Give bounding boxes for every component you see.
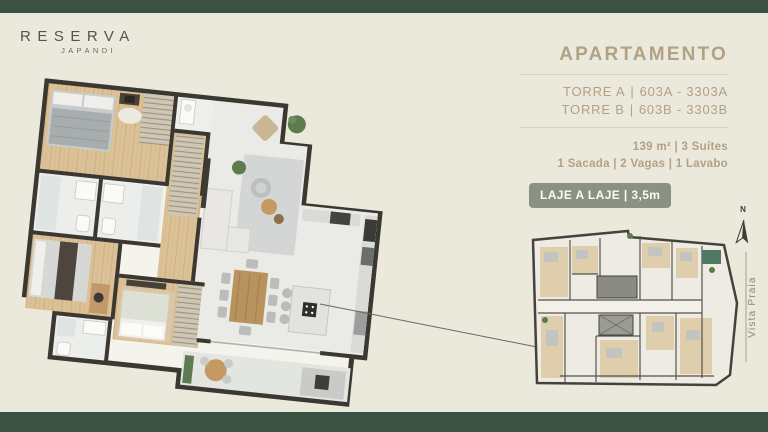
tower-b-label: TORRE B: [562, 102, 625, 117]
page-title: APARTAMENTO: [520, 44, 728, 66]
spec-list: 139 m² | 3 Suítes 1 Sacada | 2 Vagas | 1…: [520, 139, 728, 173]
tower-list: TORRE A|603A - 3303A TORRE B|603B - 3303…: [520, 83, 728, 119]
tower-a-label: TORRE A: [563, 84, 625, 99]
compass-needle-icon: [736, 220, 750, 244]
tower-b-units: 603B - 3303B: [639, 102, 728, 117]
divider: [520, 74, 728, 75]
compass-north-label: N: [736, 205, 750, 214]
tower-row-a: TORRE A|603A - 3303A: [520, 83, 728, 101]
vista-praia-label: Vista Praia: [747, 247, 761, 367]
tower-key-plan: [533, 231, 737, 385]
tower-a-units: 603A - 3303A: [640, 84, 728, 99]
spec-area-suites: 139 m² | 3 Suítes: [520, 139, 728, 156]
info-panel: APARTAMENTO TORRE A|603A - 3303A TORRE B…: [520, 44, 728, 208]
brand-name: RESERVA: [20, 28, 120, 45]
badge-wrap: LAJE A LAJE | 3,5m: [520, 183, 728, 208]
separator: |: [625, 84, 639, 99]
divider: [520, 127, 728, 128]
brand-logo: RESERVA JAPANDI: [20, 28, 120, 55]
brand-subname: JAPANDI: [20, 46, 120, 55]
separator: |: [625, 102, 639, 117]
tower-row-b: TORRE B|603B - 3303B: [520, 101, 728, 119]
spec-amenities: 1 Sacada | 2 Vagas | 1 Lavabo: [520, 156, 728, 173]
ceiling-height-badge: LAJE A LAJE | 3,5m: [529, 183, 671, 208]
brochure-slide: RESERVA JAPANDI APARTAMENTO TORRE A|603A…: [0, 0, 768, 432]
main-unit-plan: [17, 81, 390, 405]
